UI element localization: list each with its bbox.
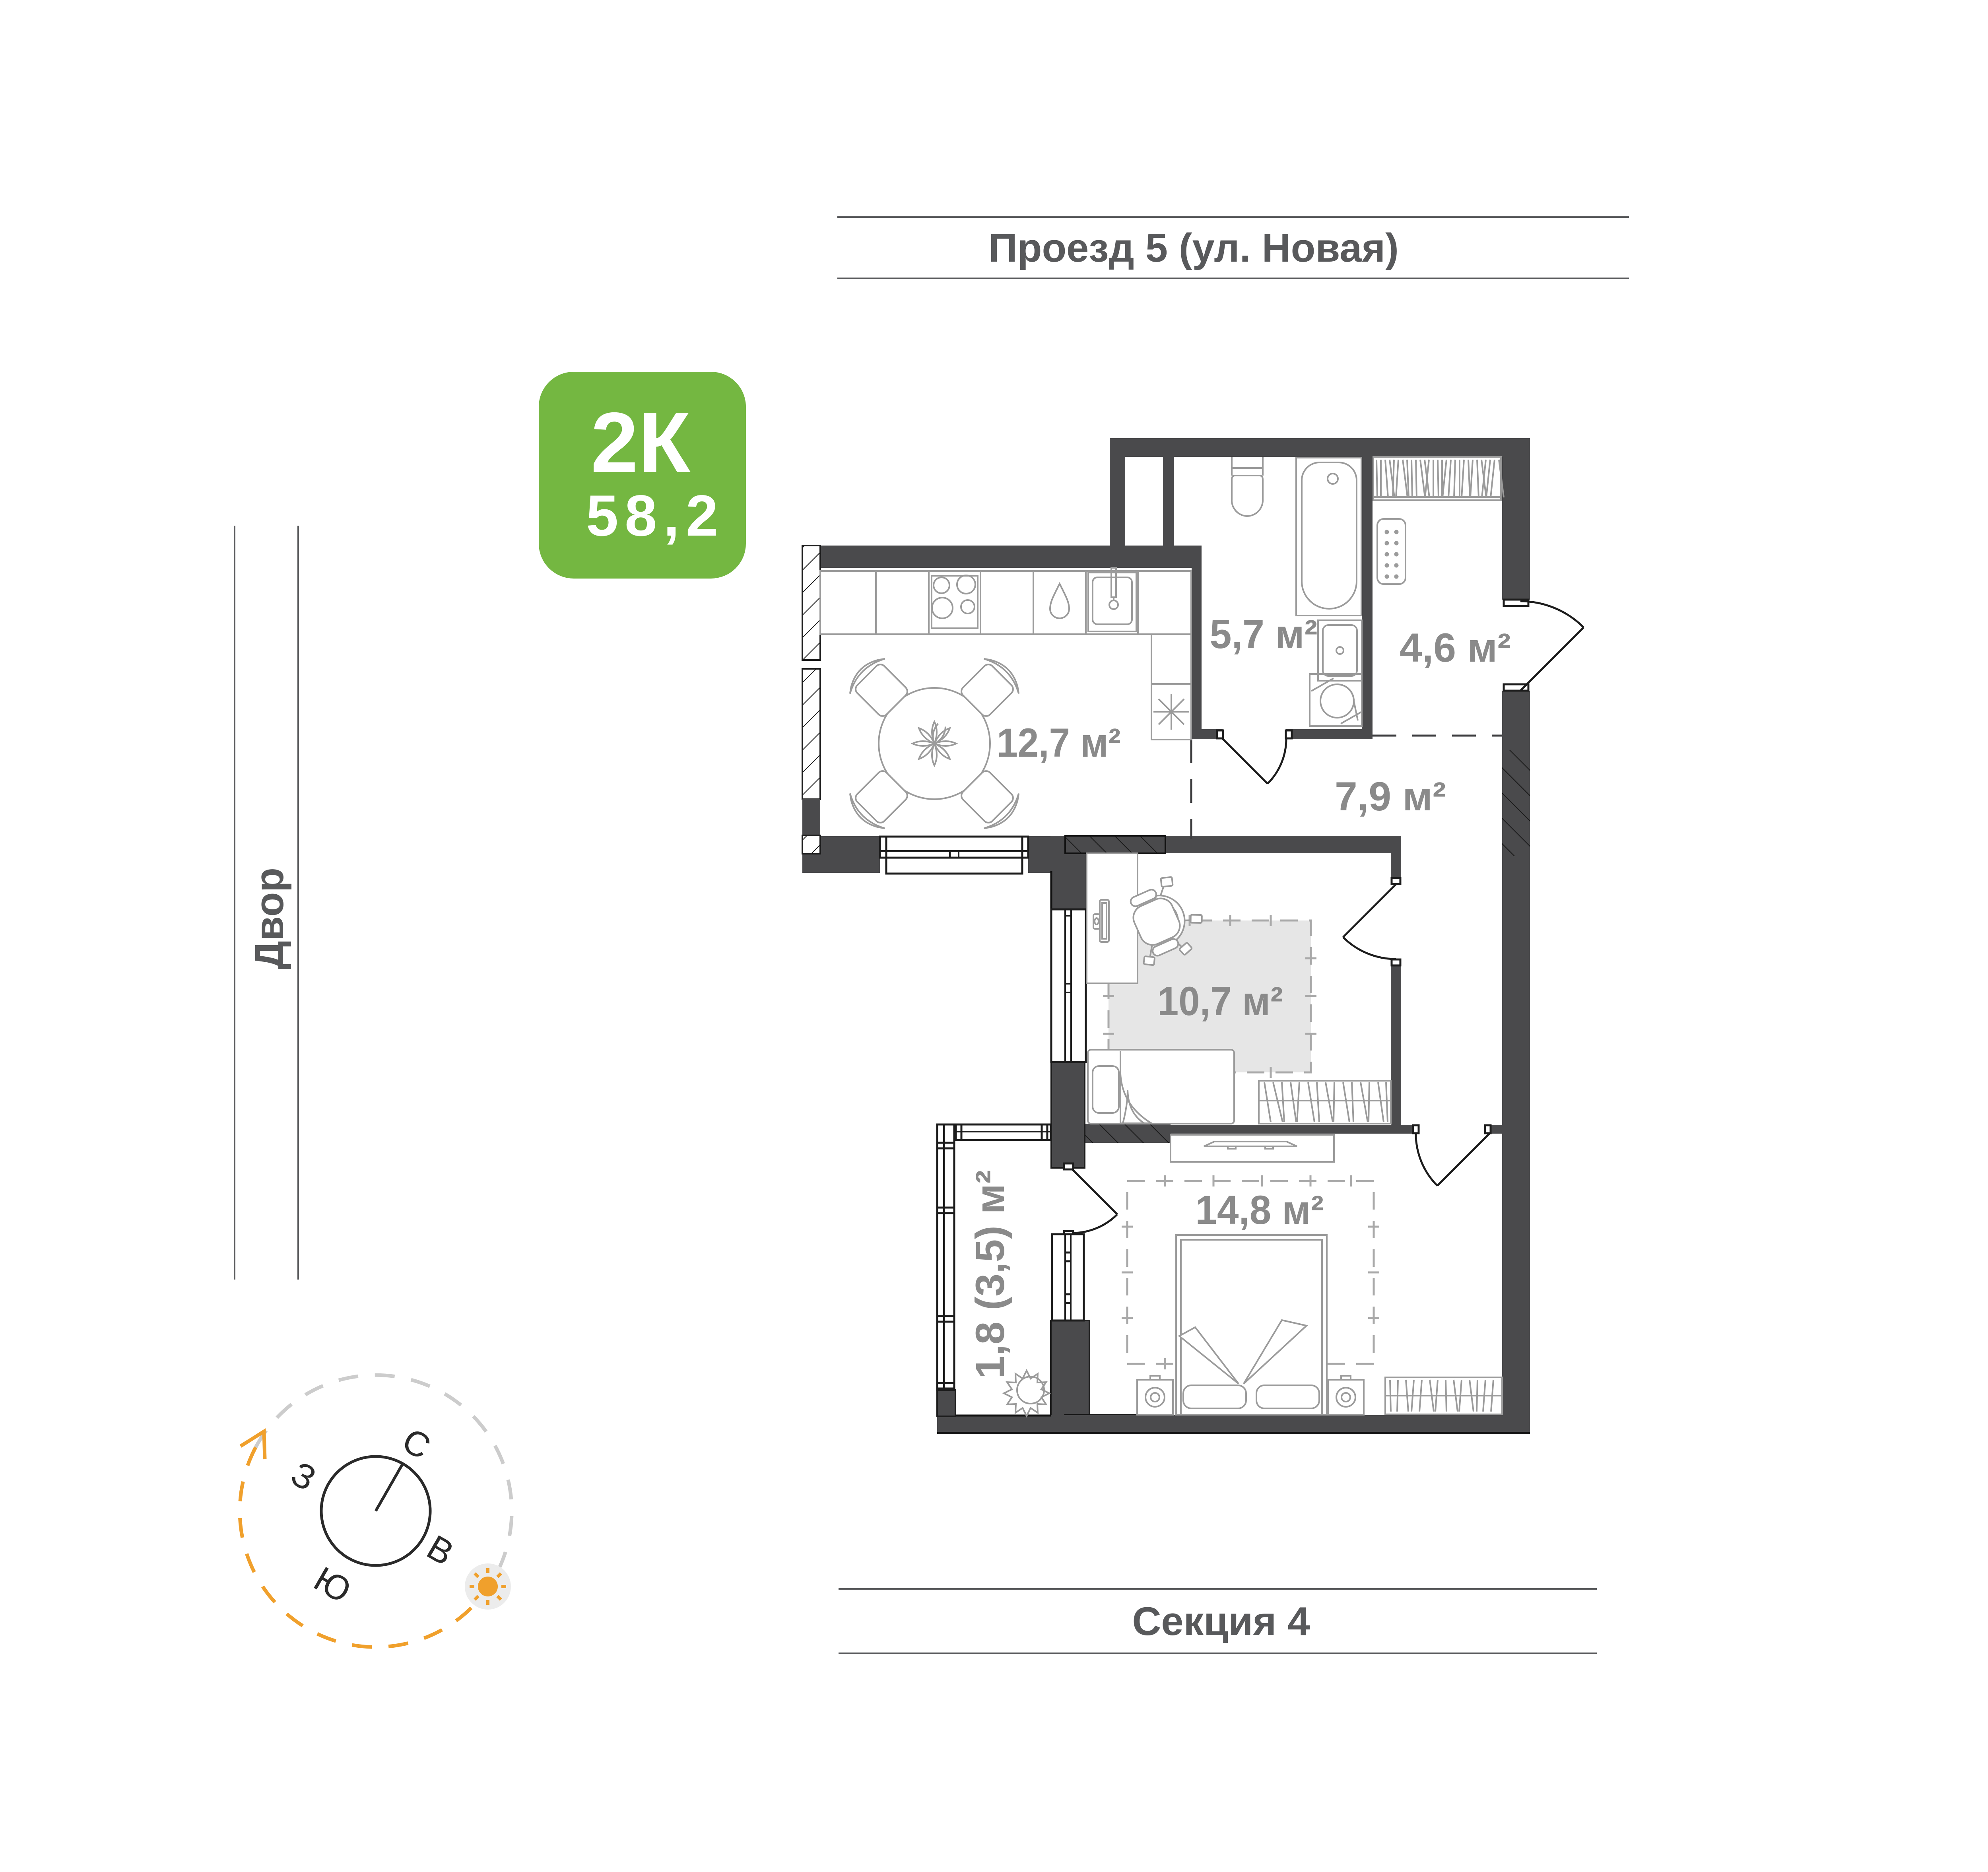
svg-text:1,8 (3,5) м²: 1,8 (3,5) м² <box>967 1170 1013 1379</box>
svg-text:Двор: Двор <box>247 868 292 969</box>
svg-text:7,9 м²: 7,9 м² <box>1335 774 1446 819</box>
svg-text:5,7 м²: 5,7 м² <box>1210 612 1318 657</box>
svg-text:Секция 4: Секция 4 <box>1132 1599 1310 1644</box>
svg-text:Проезд 5 (ул. Новая): Проезд 5 (ул. Новая) <box>988 226 1399 270</box>
svg-text:2К: 2К <box>591 394 691 490</box>
svg-text:12,7 м²: 12,7 м² <box>997 720 1121 765</box>
svg-text:10,7 м²: 10,7 м² <box>1157 979 1283 1024</box>
svg-text:14,8 м²: 14,8 м² <box>1196 1187 1324 1233</box>
svg-text:58,2: 58,2 <box>586 483 718 548</box>
svg-text:4,6 м²: 4,6 м² <box>1400 625 1511 670</box>
